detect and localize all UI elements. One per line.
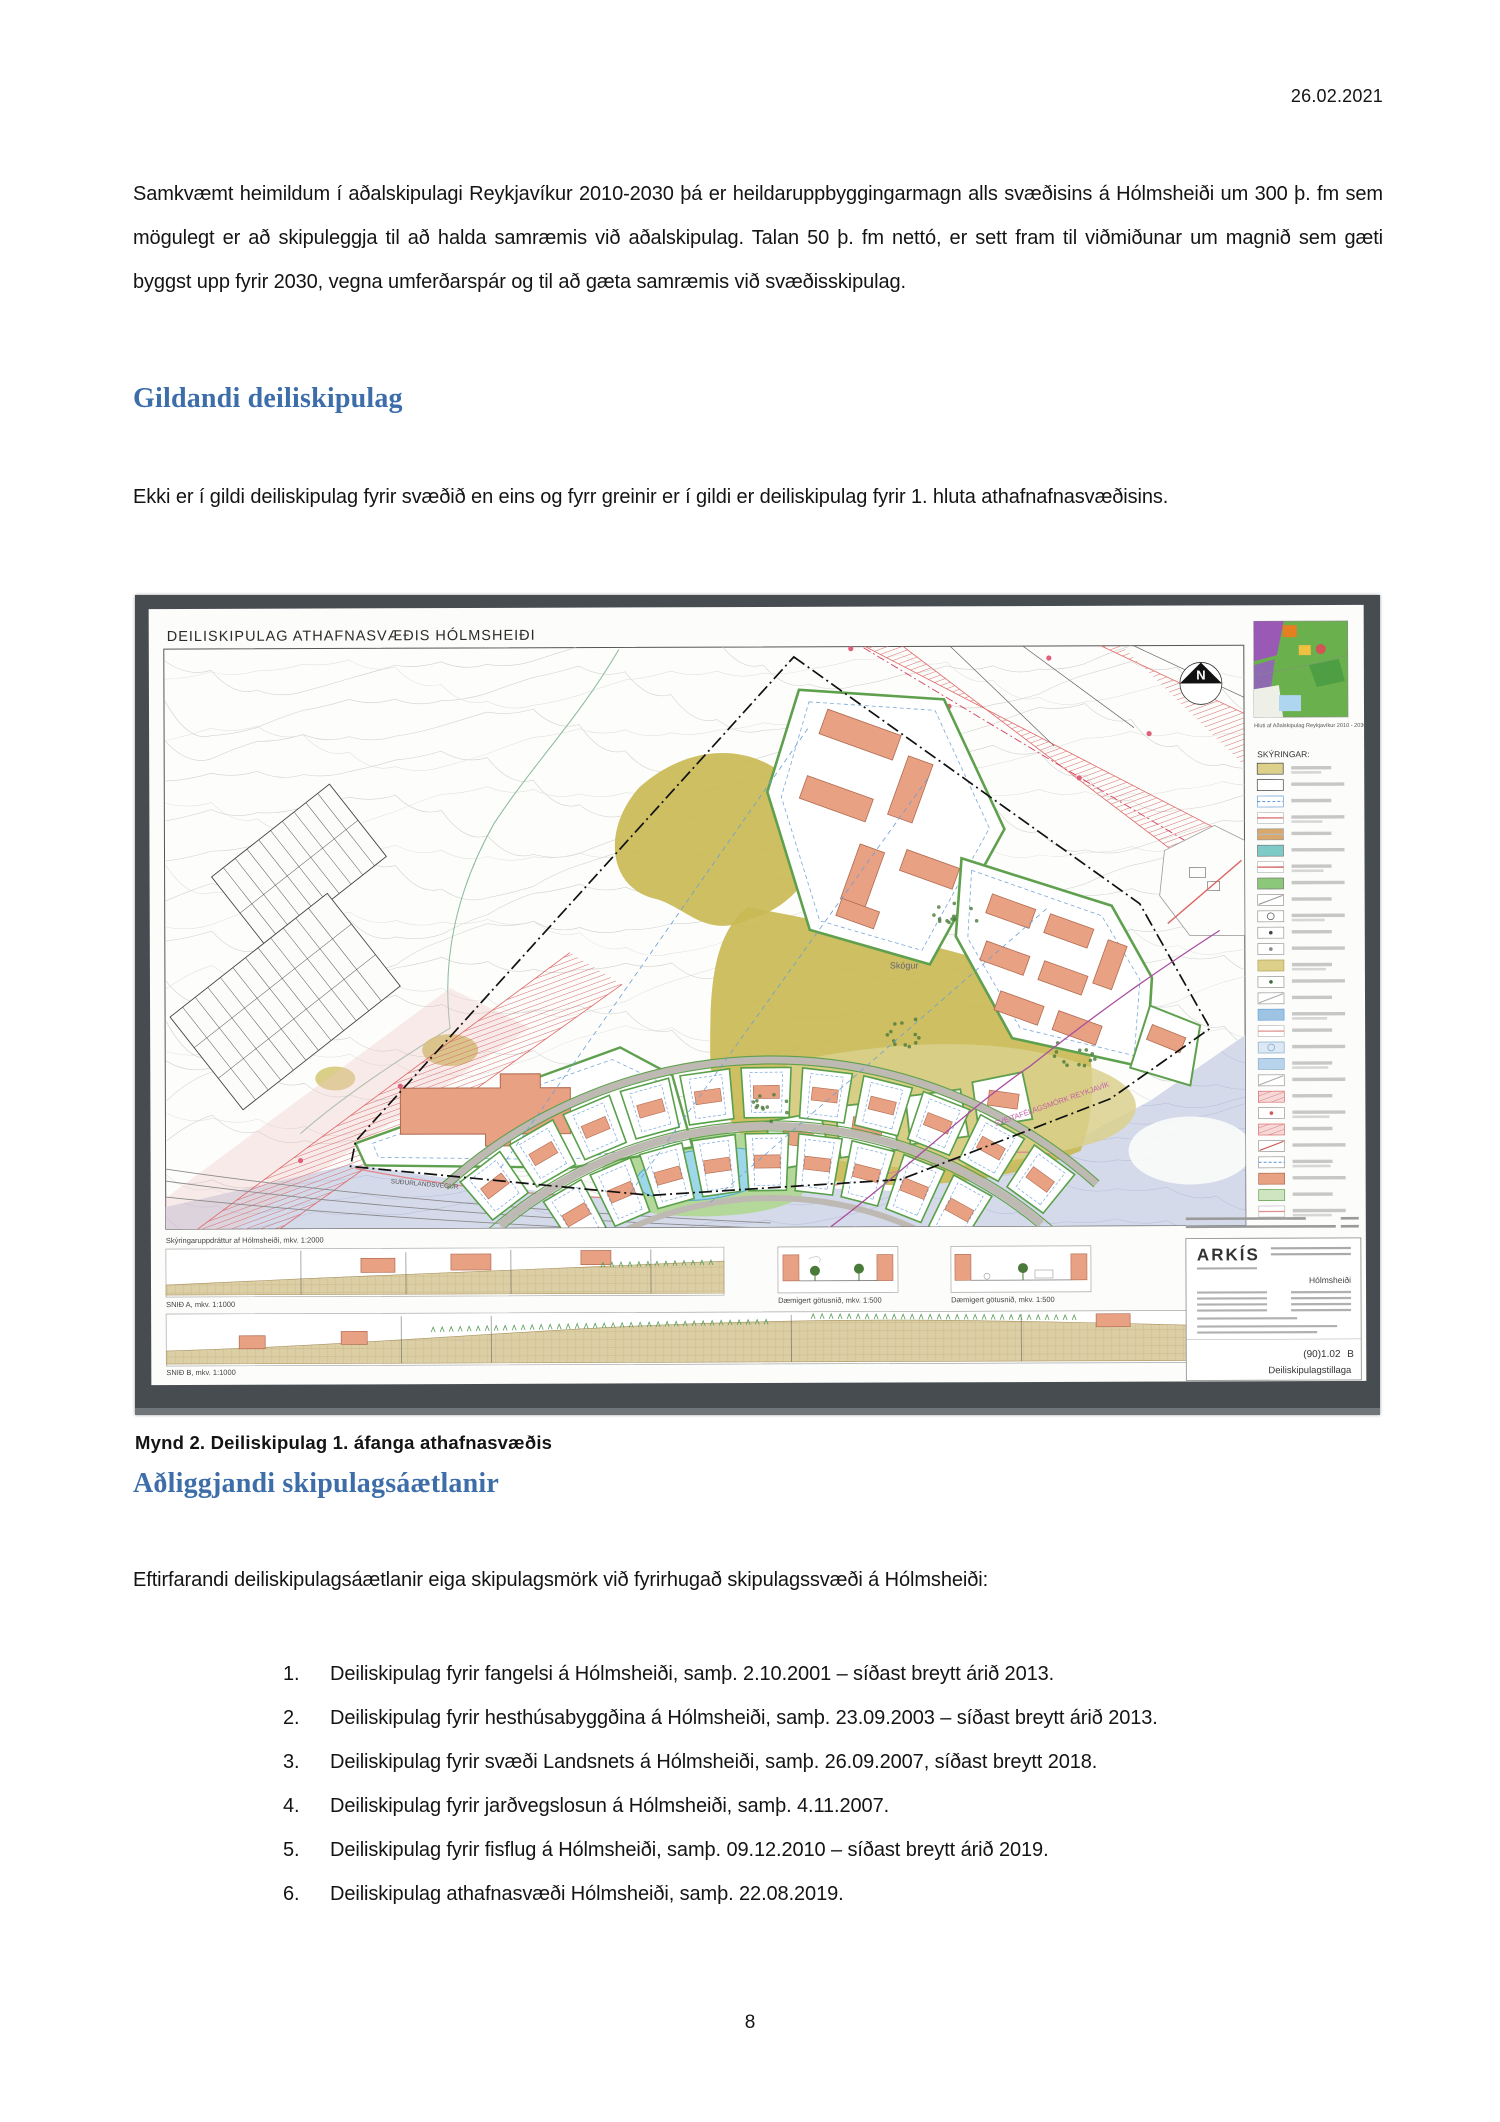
- document-date: 26.02.2021: [1291, 86, 1383, 107]
- planning-map-svg: DEILISKIPULAG ATHAFNASVÆÐIS HÓLMSHEIÐI: [149, 605, 1367, 1385]
- street-section-2-label: Dæmigert götusnið, mkv. 1:500: [951, 1295, 1055, 1304]
- list-item: Deiliskipulag fyrir fangelsi á Hólmsheið…: [330, 1652, 1383, 1696]
- title-block-project: Hólmsheiði: [1309, 1275, 1351, 1285]
- list-item: Deiliskipulag fyrir jarðvegslosun á Hólm…: [330, 1784, 1383, 1828]
- list-item: Deiliskipulag fyrir fisflug á Hólmsheiði…: [330, 1828, 1383, 1872]
- street-section-2: Dæmigert götusnið, mkv. 1:500: [951, 1246, 1091, 1304]
- profile-section-b: SNIÐ B, mkv. 1:1000: [166, 1310, 1201, 1377]
- section-heading-gildandi: Gildandi deiliskipulag: [133, 383, 403, 415]
- page-number: 8: [0, 2012, 1500, 2034]
- inset-map: Hluti af Aðalskipulag Reykjavíkur 2010 -…: [1254, 621, 1367, 729]
- document-page: 26.02.2021 Samkvæmt heimildum í aðalskip…: [0, 0, 1500, 2122]
- section-heading-adliggjandi: Aðliggjandi skipulagsáætlanir: [133, 1468, 499, 1500]
- street-section-1-label: Dæmigert götusnið, mkv. 1:500: [778, 1296, 882, 1305]
- street-section-1: Dæmigert götusnið, mkv. 1:500: [778, 1247, 898, 1305]
- map-figure: DEILISKIPULAG ATHAFNASVÆÐIS HÓLMSHEIÐI: [135, 595, 1380, 1415]
- svg-text:N: N: [1196, 667, 1205, 682]
- list-item: Deiliskipulag fyrir svæði Landsnets á Hó…: [330, 1740, 1383, 1784]
- paragraph-gildandi: Ekki er í gildi deiliskipulag fyrir svæð…: [133, 475, 1383, 519]
- intro-paragraph: Samkvæmt heimildum í aðalskipulagi Reykj…: [133, 172, 1383, 304]
- figure-caption: Mynd 2. Deiliskipulag 1. áfanga athafnas…: [135, 1432, 552, 1454]
- list-item: Deiliskipulag athafnasvæði Hólmsheiði, s…: [330, 1872, 1383, 1916]
- paragraph-adliggjandi: Eftirfarandi deiliskipulagsáætlanir eiga…: [133, 1558, 1383, 1602]
- profile-a-label: SNIÐ A, mkv. 1:1000: [166, 1300, 235, 1309]
- profile-section-a: SNIÐ A, mkv. 1:1000: [166, 1247, 724, 1309]
- title-block-firm: ARKÍS: [1197, 1245, 1260, 1264]
- map-legend: SKÝRINGAR:: [1257, 749, 1346, 1217]
- inset-caption: Hluti af Aðalskipulag Reykjavíkur 2010 -…: [1254, 722, 1366, 729]
- scale-note: Skýringaruppdráttur af Hólmsheiði, mkv. …: [166, 1236, 324, 1246]
- title-block-sheet: (90)1.02: [1303, 1349, 1341, 1360]
- map-paper: DEILISKIPULAG ATHAFNASVÆÐIS HÓLMSHEIÐI: [149, 605, 1367, 1385]
- north-arrow-icon: N: [1180, 662, 1222, 704]
- title-block-doctype: Deiliskipulagstillaga: [1268, 1365, 1352, 1376]
- title-block: ARKÍS Hólmsheiði (90): [1186, 1238, 1361, 1381]
- label-skogur: Skógur: [890, 960, 919, 970]
- list-item: Deiliskipulag fyrir hesthúsabyggðina á H…: [330, 1696, 1383, 1740]
- svg-text:(90)1.02: (90)1.02: [1303, 1349, 1341, 1360]
- title-block-revision: B: [1347, 1349, 1354, 1360]
- legend-title: SKÝRINGAR:: [1257, 749, 1309, 759]
- profile-b-label: SNIÐ B, mkv. 1:1000: [166, 1368, 236, 1377]
- frame-strip: [135, 1408, 1380, 1415]
- map-title: DEILISKIPULAG ATHAFNASVÆÐIS HÓLMSHEIÐI: [167, 627, 536, 645]
- plan-list: Deiliskipulag fyrir fangelsi á Hólmsheið…: [330, 1652, 1383, 1916]
